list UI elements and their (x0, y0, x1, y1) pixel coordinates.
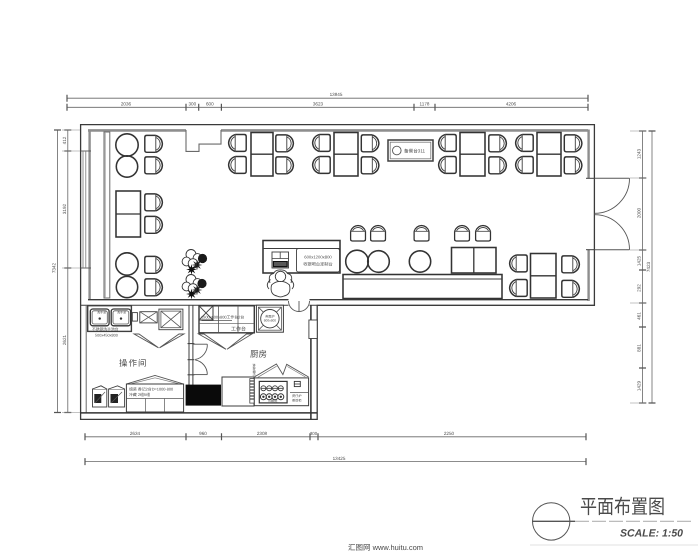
svg-text:煲仔炉: 煲仔炉 (292, 394, 302, 398)
svg-text:412: 412 (62, 136, 67, 144)
svg-text:SCALE: 1:50: SCALE: 1:50 (620, 528, 683, 540)
svg-text:7423: 7423 (646, 261, 651, 272)
svg-text:461: 461 (637, 312, 642, 320)
svg-text:600x1200x800: 600x1200x800 (304, 255, 332, 260)
svg-text:2250: 2250 (444, 431, 455, 436)
svg-text:2036: 2036 (121, 102, 132, 107)
svg-text:300: 300 (310, 431, 318, 436)
svg-text:抽油烟机: 抽油烟机 (252, 364, 256, 378)
svg-text:收银吧台定制台: 收银吧台定制台 (303, 262, 332, 267)
svg-text:冷藏 2组5组: 冷藏 2组5组 (129, 392, 150, 397)
svg-text:4206: 4206 (506, 102, 517, 107)
svg-text:工作台: 工作台 (231, 326, 246, 333)
svg-text:292: 292 (637, 284, 642, 292)
svg-text:13425: 13425 (333, 456, 346, 461)
svg-text:2634: 2634 (130, 431, 141, 436)
svg-text:汇图网 www.huitu.com: 汇图网 www.huitu.com (348, 543, 423, 552)
svg-text:3192: 3192 (62, 203, 67, 214)
svg-text:7342: 7342 (52, 262, 57, 273)
svg-text:881: 881 (637, 344, 642, 352)
svg-text:不锈钢洗手池台: 不锈钢洗手池台 (92, 327, 119, 332)
svg-text:洗手池: 洗手池 (117, 311, 126, 315)
svg-text:600x600: 600x600 (264, 319, 276, 323)
svg-text:600: 600 (206, 102, 214, 107)
svg-text:2000: 2000 (637, 207, 642, 218)
svg-text:960: 960 (199, 431, 207, 436)
svg-text:1178: 1178 (420, 102, 430, 107)
svg-text:四眼灶: 四眼灶 (268, 399, 277, 403)
svg-text:厨房: 厨房 (250, 349, 267, 359)
svg-text:500x450x800: 500x450x800 (95, 334, 118, 338)
svg-text:平面布置图: 平面布置图 (580, 497, 665, 519)
svg-text:300: 300 (188, 102, 196, 107)
svg-text:备餐台311: 备餐台311 (404, 148, 426, 153)
svg-text:1243: 1243 (637, 148, 642, 159)
svg-text:13845: 13845 (330, 92, 343, 97)
svg-text:组装 香记2台D=1000-800: 组装 香记2台D=1000-800 (129, 387, 174, 392)
svg-text:1500x600x800工作台2台: 1500x600x800工作台2台 (201, 314, 244, 319)
svg-text:2308: 2308 (257, 431, 268, 436)
svg-text:操作间: 操作间 (119, 358, 148, 368)
svg-text:1429: 1429 (637, 380, 642, 391)
svg-text:洗手池: 洗手池 (97, 311, 106, 315)
svg-text:1425: 1425 (637, 255, 642, 266)
svg-text:3623: 3623 (313, 102, 324, 107)
svg-text:2621: 2621 (62, 334, 67, 345)
svg-text:蒸饭柜: 蒸饭柜 (292, 399, 302, 403)
